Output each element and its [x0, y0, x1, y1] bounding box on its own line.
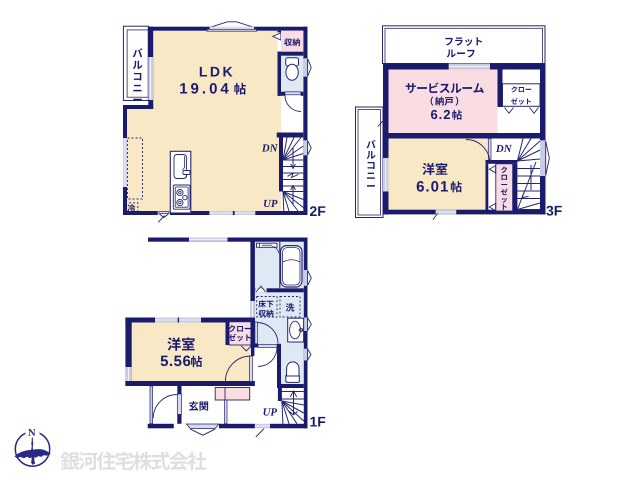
- svg-text:3F: 3F: [546, 203, 563, 219]
- svg-text:DN: DN: [495, 143, 513, 155]
- svg-text:19.04: 19.04: [179, 81, 232, 98]
- svg-text:6.01: 6.01: [416, 178, 449, 195]
- svg-text:UP: UP: [263, 198, 278, 210]
- svg-text:5.56: 5.56: [160, 353, 191, 370]
- svg-text:UP: UP: [263, 407, 278, 419]
- svg-text:LDK: LDK: [199, 64, 235, 80]
- svg-text:N: N: [28, 428, 36, 439]
- svg-text:6.2: 6.2: [430, 107, 451, 122]
- svg-text:DN: DN: [261, 142, 279, 154]
- svg-text:2F: 2F: [310, 203, 327, 219]
- svg-text:1F: 1F: [310, 413, 327, 429]
